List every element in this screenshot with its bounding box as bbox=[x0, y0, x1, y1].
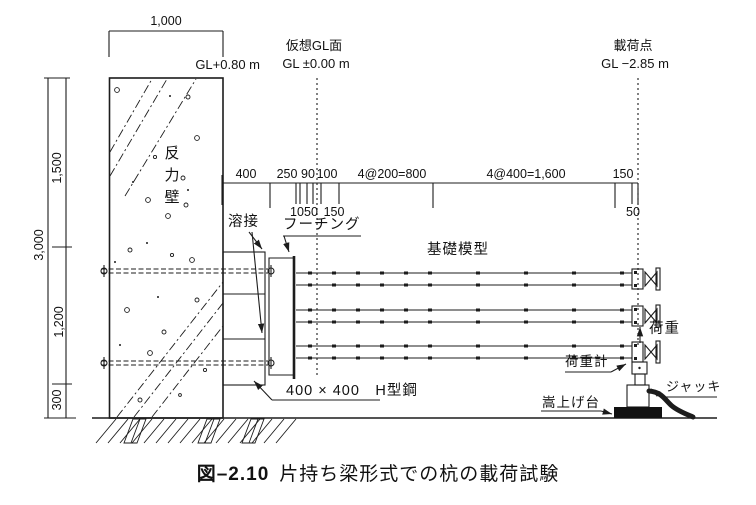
tie-rods bbox=[101, 269, 268, 365]
weld-label: 溶接 bbox=[228, 215, 259, 231]
footing-label: フーチング bbox=[283, 218, 361, 234]
pile-load-test-figure: 1,000 GL+0.80 m 仮想GL面 GL ±0.00 m 載荷点 GL … bbox=[0, 0, 756, 505]
dim-upper-height: 1,500 bbox=[50, 152, 64, 183]
load-point-level: GL −2.85 m bbox=[595, 57, 675, 71]
jack-label: ジャッキ bbox=[666, 380, 721, 394]
riser-stand-label: 嵩上げ台 bbox=[542, 396, 600, 411]
load-cell-label: 荷重計 bbox=[565, 355, 609, 370]
foundation-model-label: 基礎模型 bbox=[427, 243, 489, 259]
tie-rod-anchors bbox=[101, 265, 274, 369]
riser-stand-block bbox=[614, 407, 662, 418]
virtual-gl-title: 仮想GL面 bbox=[274, 39, 354, 53]
reaction-wall-label: 反力壁 bbox=[162, 145, 179, 211]
wall-top-level-label: GL+0.80 m bbox=[190, 58, 260, 72]
jack-body bbox=[627, 385, 649, 407]
jack-ram bbox=[635, 374, 645, 385]
left-dimension-lines bbox=[44, 78, 76, 418]
ground-hatch-boxes bbox=[124, 419, 264, 443]
dim-lower-height: 300 bbox=[50, 390, 64, 411]
load-label: 荷重 bbox=[649, 322, 680, 338]
top-width-dimension bbox=[109, 31, 223, 57]
hdim-100: 100 bbox=[311, 168, 343, 182]
hdim-150: 150 bbox=[603, 168, 643, 182]
dim-middle-height: 1,200 bbox=[52, 306, 66, 337]
hdim-400: 400 bbox=[226, 168, 266, 182]
h-beam-label: 400 × 400 H型鋼 bbox=[286, 384, 418, 400]
model-piles bbox=[296, 273, 632, 358]
hdim-4at200: 4@200=800 bbox=[342, 168, 442, 182]
load-point-title: 載荷点 bbox=[593, 39, 673, 53]
pile-head-fitting bbox=[632, 268, 660, 290]
pile-head-fittings bbox=[632, 268, 660, 363]
load-cell-box bbox=[632, 362, 647, 374]
reaction-wall bbox=[110, 78, 224, 418]
wall-aggregate-texture bbox=[114, 88, 207, 402]
hdim-4at400: 4@400=1,600 bbox=[466, 168, 586, 182]
top-width-dim-label: 1,000 bbox=[109, 15, 223, 29]
dim-total-height: 3,000 bbox=[32, 229, 46, 260]
figure-number: 図–2.10 bbox=[197, 464, 270, 485]
ground-hatch bbox=[96, 419, 296, 443]
figure-caption: 図–2.10片持ち梁形式での杭の載荷試験 bbox=[0, 459, 756, 486]
hdim-sub-right-50: 50 bbox=[618, 206, 648, 220]
figure-title: 片持ち梁形式での杭の載荷試験 bbox=[279, 464, 559, 485]
pile-head-fitting bbox=[632, 341, 660, 363]
diagram-canvas bbox=[0, 0, 756, 505]
wall-corner-hatch bbox=[110, 79, 223, 417]
virtual-gl-level: GL ±0.00 m bbox=[276, 57, 356, 71]
